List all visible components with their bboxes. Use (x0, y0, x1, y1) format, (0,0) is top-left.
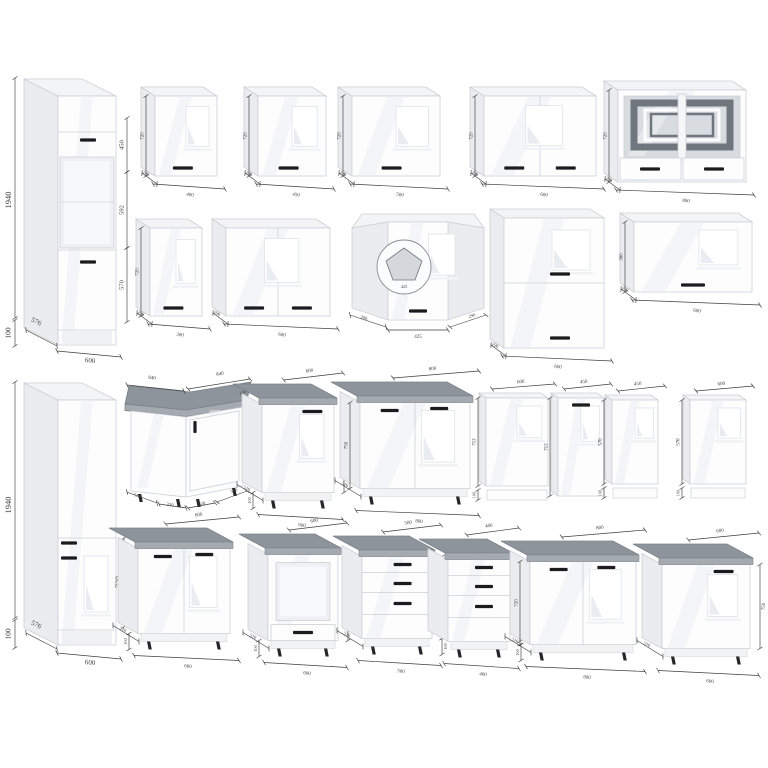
dim-label: 450 (634, 382, 642, 388)
dim-label: 1940 (3, 192, 13, 209)
door-handle (80, 260, 96, 263)
door-handle (382, 166, 402, 169)
window-reflection (296, 415, 326, 464)
door-handle (681, 283, 705, 286)
door-handle (163, 306, 183, 309)
window-reflection (632, 408, 656, 443)
dim-label: 100 (515, 648, 520, 655)
dim-label: 713 (473, 438, 478, 446)
door-handle (61, 556, 77, 559)
cabinet-diagram-svg: 1940100576600450592570400720296450720296… (0, 0, 768, 768)
door-handle (394, 582, 412, 585)
dim-label: 720 (244, 132, 249, 140)
door-handle (597, 566, 615, 569)
base-cabinet-600-single: 600600750516 (633, 529, 767, 686)
dim-label: 300 (176, 333, 185, 339)
dim-label: 720 (136, 268, 141, 276)
window-reflection (705, 575, 741, 622)
base-cabinet-600-double: 600600516100 (109, 513, 241, 671)
dim-label: 570 (677, 438, 682, 446)
dim-label: 500 (404, 521, 413, 527)
door-handle (504, 166, 524, 169)
door-handle (80, 138, 96, 141)
wall-cabinet-600-double-2: 600296 (212, 219, 340, 339)
dim-label: 600 (717, 382, 725, 388)
dim-label: 100 (4, 628, 13, 640)
dim-label: 400 (485, 524, 494, 530)
dim-label: 800 (429, 367, 438, 373)
dim-label: 570 (118, 280, 125, 290)
door-handle (550, 568, 568, 571)
dim-label: 450 (118, 140, 125, 150)
window-reflection (81, 556, 111, 617)
dim-label: 100 (675, 490, 680, 496)
dim-label: 600 (195, 513, 204, 519)
door-handle (640, 167, 660, 170)
tall-cabinet-pantry-600: 1940100576600720 (3, 380, 127, 667)
tall-cabinet-oven-600: 1940100576600450592570 (3, 76, 130, 365)
dim-label: 600 (554, 365, 563, 371)
dim-label: 840 (148, 376, 156, 382)
door-handle (394, 602, 412, 605)
base-cabinet-corner-840: 840840600516320320516 (125, 371, 252, 510)
window-reflection (514, 406, 545, 442)
wall-cabinet-800-glass: 800720296 (604, 81, 756, 205)
door-handle (193, 421, 196, 433)
dim-label: 750 (762, 602, 767, 610)
window-reflection (549, 230, 593, 275)
window-reflection (183, 106, 212, 150)
dim-label: 500 (396, 193, 405, 199)
dim-label: 720 (604, 132, 609, 140)
dim-label: 296 (468, 312, 477, 319)
wall-cabinet-600-stacked: 600296 (490, 209, 614, 371)
dim-label: 100 (253, 644, 258, 651)
kitchen-cabinet-catalog-sheet: 1940100576600450592570400720296450720296… (0, 0, 768, 768)
door-handle (409, 309, 427, 312)
dim-label: 600 (706, 679, 715, 685)
dim-label: 400 (186, 193, 195, 199)
door-handle (475, 585, 493, 588)
dim-label: 800 (596, 526, 605, 532)
dim-label: 425 (401, 284, 407, 289)
window-reflection (696, 230, 741, 270)
dim-label: 1940 (3, 497, 13, 514)
dim-label: 600 (716, 529, 725, 535)
dim-label: 600 (84, 356, 96, 365)
dim-label: 425 (414, 335, 422, 340)
window-reflection (522, 106, 565, 151)
wall-cabinet-450: 450720296 (244, 87, 336, 199)
base-cabinet-800-double: 800800750516 (331, 367, 481, 526)
dim-label: 600 (517, 380, 525, 386)
dim-label: 100 (597, 490, 602, 496)
dim-label: 600 (184, 664, 193, 670)
door-handle (381, 409, 399, 412)
dim-label: 800 (415, 519, 424, 525)
dim-label: 600 (278, 333, 287, 339)
dim-label: 720 (141, 132, 146, 140)
dim-label: 320 (198, 500, 206, 506)
window-reflection (261, 239, 301, 288)
window-reflection (393, 106, 432, 150)
door-handle (195, 553, 213, 556)
dim-label: 600 (540, 193, 549, 199)
window-reflection (419, 411, 458, 467)
door-handle (302, 410, 322, 413)
dim-label: 600 (693, 309, 702, 315)
door-handle (293, 631, 313, 634)
front-panel-600-2: 600570100 (675, 382, 754, 500)
door-handle (430, 407, 448, 410)
dim-label: 450 (580, 380, 588, 386)
base-cabinet-600: 600600750516100 (233, 369, 351, 530)
dim-label: 840 (216, 371, 225, 377)
wall-cabinet-500: 500720296 (338, 87, 450, 199)
dim-label: 713 (545, 443, 550, 451)
dim-label: 320 (166, 502, 174, 508)
door-handle (61, 541, 77, 544)
wall-cabinet-400: 400720296 (141, 87, 227, 199)
door-handle (154, 555, 172, 558)
door-handle (292, 306, 312, 309)
door-handle (475, 566, 493, 569)
wall-cabinet-600-double: 600720296 (470, 87, 606, 199)
dim-label: 800 (682, 199, 691, 205)
dim-label: 592 (118, 205, 125, 215)
dim-label: 100 (443, 642, 448, 649)
dim-label: 720 (338, 132, 343, 140)
window-reflection (289, 106, 320, 150)
dim-label: 600 (84, 658, 96, 667)
wall-cabinet-corner-425: 425296425296720 (349, 214, 499, 340)
dim-label: 100 (4, 327, 13, 339)
door-handle (394, 563, 412, 566)
dim-label: 750 (345, 441, 350, 449)
dim-label: 100 (247, 496, 252, 503)
dim-label: 570 (599, 438, 604, 446)
dim-label: 800 (583, 675, 592, 681)
base-cabinet-800-double-2: 800800720516100 (501, 526, 647, 682)
wall-cabinet-600-horizontal: 600360296 (620, 213, 762, 315)
dim-label: 720 (515, 599, 520, 607)
window-reflection (586, 570, 624, 624)
door-handle (556, 166, 576, 169)
door-handle (173, 166, 193, 169)
dim-label: 600 (303, 671, 312, 677)
door-handle (704, 167, 724, 170)
front-panel-450: 450570100 (597, 382, 666, 500)
dim-label: 360 (620, 253, 625, 261)
dim-label: 720 (470, 132, 475, 140)
dim-label: 500 (397, 669, 406, 675)
dim-label: 400 (479, 672, 488, 678)
door-handle (475, 605, 493, 608)
dim-label: 450 (292, 193, 301, 199)
wall-cabinet-300: 300720296 (136, 219, 212, 339)
base-cabinet-oven-600: 600600750516100 (239, 519, 355, 678)
door-handle (244, 306, 264, 309)
dim-label: 100 (123, 637, 128, 644)
door-handle (550, 336, 570, 339)
dim-label: 100 (471, 492, 476, 498)
front-panel-600: 600713100 (471, 380, 556, 502)
door-handle (572, 403, 590, 406)
dim-label: 600 (306, 369, 315, 375)
door-handle (550, 272, 570, 275)
door-handle (714, 570, 734, 573)
window-reflection (715, 408, 743, 443)
window-reflection (173, 239, 198, 288)
window-reflection (187, 557, 221, 613)
door-handle (279, 166, 299, 169)
dim-label: 600 (310, 519, 319, 525)
dim-label: 296 (360, 314, 369, 321)
